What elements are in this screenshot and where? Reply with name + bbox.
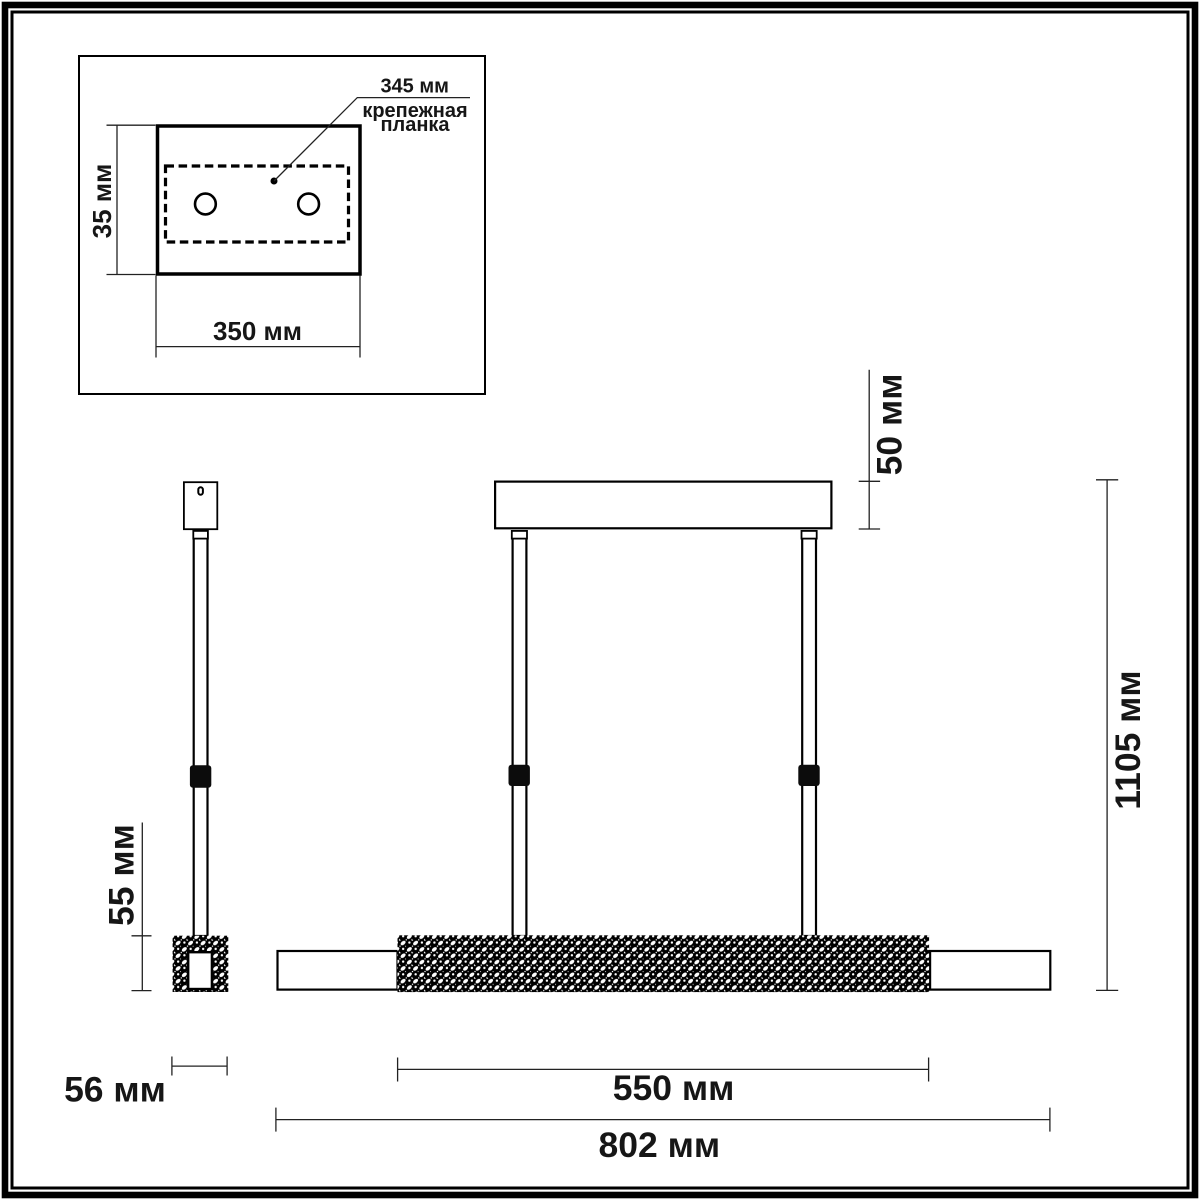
svg-text:802 мм: 802 мм [598,1125,720,1165]
svg-text:56 мм: 56 мм [64,1070,166,1110]
svg-text:350 мм: 350 мм [213,316,302,346]
svg-text:1105 мм: 1105 мм [1108,670,1148,809]
svg-text:550 мм: 550 мм [613,1068,735,1108]
svg-text:50 мм: 50 мм [870,373,910,475]
svg-text:планка: планка [380,114,450,136]
svg-text:35 мм: 35 мм [87,164,117,239]
svg-text:345 мм: 345 мм [380,76,449,98]
svg-text:55 мм: 55 мм [102,824,142,926]
